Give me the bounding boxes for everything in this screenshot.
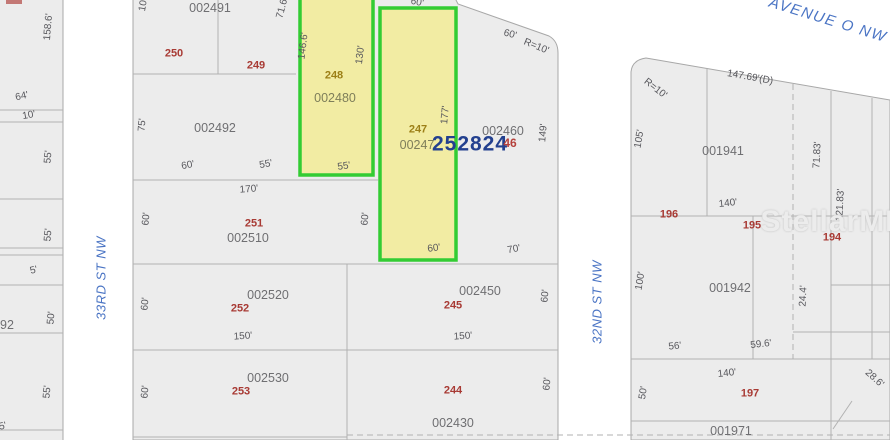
dim-50: 50' xyxy=(46,311,57,325)
dim-60-e: 60' xyxy=(140,385,151,399)
lot-number-252: 252 xyxy=(231,304,249,315)
dim-55-highlight: 55' xyxy=(337,161,351,173)
lot-number-250: 250 xyxy=(165,49,183,60)
dim-71-83: 71.83' xyxy=(812,141,823,168)
lot-number-197: 197 xyxy=(741,389,759,400)
lot-number-245: 245 xyxy=(444,301,462,312)
dim-140-b: 140' xyxy=(717,368,737,380)
parcel-number-002460: 002460 xyxy=(482,125,524,138)
parcel-number-001941: 001941 xyxy=(702,145,744,158)
dim-75: 75' xyxy=(137,118,148,132)
dim-55-c: 55' xyxy=(42,385,53,399)
lot-number-253: 253 xyxy=(232,387,250,398)
parcel-number-002450: 002450 xyxy=(459,285,501,298)
lot-number-247: 247 xyxy=(409,125,427,136)
lot-number-244: 244 xyxy=(444,386,462,397)
parcel-number-002480: 002480 xyxy=(314,92,356,105)
lot-number-46-fragment: 46 xyxy=(503,137,516,149)
dim-60-c: 60' xyxy=(360,212,371,226)
dim-177: 177' xyxy=(440,105,452,124)
dim-55-b: 55' xyxy=(43,228,54,242)
parcel-number-002492: 002492 xyxy=(194,122,236,135)
parcel-number-002430: 002430 xyxy=(432,417,474,430)
dim-140-a: 140' xyxy=(718,198,738,210)
parcel-number-00247: 00247 xyxy=(400,139,435,152)
dim-60-g: 60' xyxy=(542,377,553,391)
lot-number-248: 248 xyxy=(325,71,343,82)
left-parcel-strip xyxy=(0,0,63,440)
street-label-32nd-st-nw: 32ND ST NW xyxy=(591,260,604,344)
parcel-number-001971: 001971 xyxy=(710,425,752,438)
lot-number-195: 195 xyxy=(743,221,761,232)
street-label-33rd-st-nw: 33RD ST NW xyxy=(95,236,108,320)
lot-number-196: 196 xyxy=(660,210,678,221)
parcel-number-002520: 002520 xyxy=(247,289,289,302)
stellar-mls-watermark: StellarMLS xyxy=(760,207,890,237)
dim-60-f: 60' xyxy=(540,289,551,303)
parcel-number-002530: 002530 xyxy=(247,372,289,385)
dim-149: 149' xyxy=(538,123,550,142)
dim-24-4: 24.4' xyxy=(798,285,809,307)
dim-60-bottom-highlight: 60' xyxy=(427,243,441,255)
dim-55-a: 55' xyxy=(43,150,54,164)
highlighted-parcel-248 xyxy=(300,0,373,175)
dim-150-a: 150' xyxy=(233,331,252,342)
dim-170: 170' xyxy=(239,184,258,196)
lot-number-251: 251 xyxy=(245,219,263,230)
dim-60-d: 60' xyxy=(140,297,151,311)
parcel-number-001942: 001942 xyxy=(709,282,751,295)
dim-56: 56' xyxy=(668,341,682,352)
dim-60-b: 60' xyxy=(141,212,152,226)
dim-150-b: 150' xyxy=(453,331,472,342)
parcel-number-002510: 002510 xyxy=(227,232,269,245)
lot-number-249: 249 xyxy=(247,61,265,72)
parcel-number-partial: 92 xyxy=(0,319,14,332)
parcel-number-002491: 002491 xyxy=(189,2,231,15)
right-parcel-block xyxy=(631,58,890,440)
plat-map: 158.6' 64' 10' 55' 55' 5' 92 50' 55' 5' … xyxy=(0,0,890,440)
clipped-red-label xyxy=(6,0,22,4)
